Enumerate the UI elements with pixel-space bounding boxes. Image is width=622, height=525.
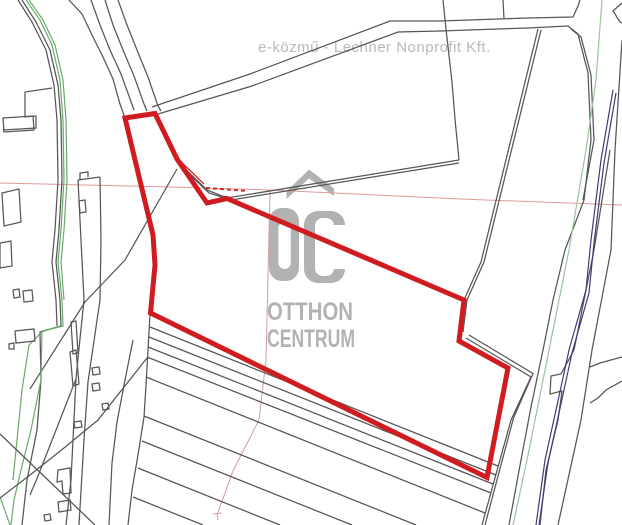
svg-text:OTTHON: OTTHON bbox=[267, 298, 353, 326]
svg-text:CENTRUM: CENTRUM bbox=[267, 325, 355, 353]
svg-text:e-közmű - Lechner Nonprofit Kf: e-közmű - Lechner Nonprofit Kft. bbox=[258, 39, 491, 56]
